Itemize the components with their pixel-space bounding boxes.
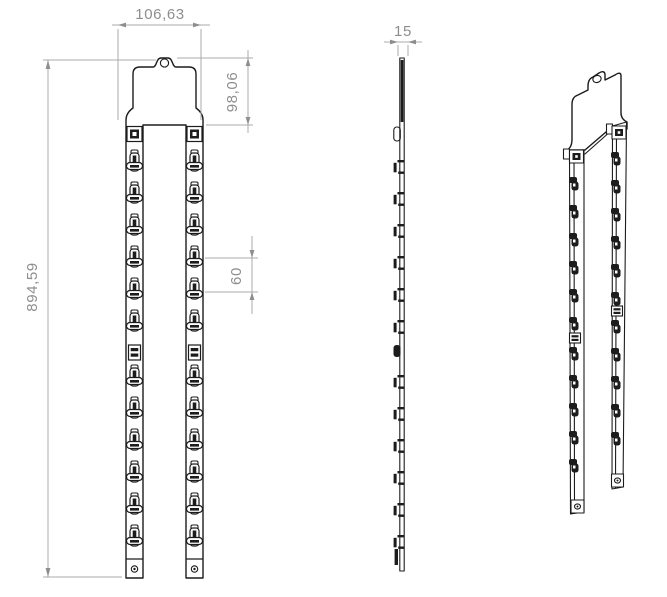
hook-pill-slot bbox=[130, 229, 139, 232]
hook-pill-slot bbox=[130, 165, 139, 168]
side-hook-tick bbox=[398, 503, 405, 505]
iso-top-square-right bbox=[612, 126, 626, 139]
iso-strip-left-fold bbox=[574, 150, 575, 513]
side-hook-bar bbox=[394, 442, 397, 452]
side-hook-bar bbox=[394, 474, 397, 484]
iso-hook-gap bbox=[573, 212, 576, 215]
iso-hook-gap bbox=[573, 438, 576, 441]
hook-pill-slot bbox=[130, 508, 139, 511]
hook-pill-slot bbox=[190, 293, 199, 296]
iso-hook-gap bbox=[615, 187, 618, 190]
side-hook-tick bbox=[398, 236, 404, 238]
hook-pill-slot bbox=[190, 165, 199, 168]
side-hook-bar bbox=[394, 291, 397, 301]
side-hook-tick bbox=[398, 547, 404, 549]
arrowhead-left-icon bbox=[118, 23, 126, 28]
dim-overall-height-label: 894,59 bbox=[24, 262, 41, 311]
side-hook-tick bbox=[398, 224, 405, 226]
iso-hook-gap bbox=[615, 355, 618, 358]
hook-pill-slot bbox=[190, 197, 199, 200]
iso-hook-gap bbox=[573, 354, 576, 357]
foot-hole-center bbox=[617, 480, 619, 482]
foot-hole-center bbox=[133, 568, 135, 570]
hook-pill-slot bbox=[130, 293, 139, 296]
arrowhead-right-icon bbox=[390, 40, 398, 45]
arrowhead-right-icon bbox=[193, 23, 201, 28]
bracket-hole bbox=[618, 131, 621, 134]
iso-mid-slot bbox=[572, 339, 579, 341]
side-hook-tick bbox=[398, 172, 404, 174]
side-hook-tick bbox=[398, 419, 404, 421]
hook-pill-slot bbox=[130, 197, 139, 200]
side-hook-tick bbox=[398, 451, 404, 453]
iso-hook-gap bbox=[615, 411, 618, 414]
arrowhead-down-icon bbox=[46, 568, 51, 577]
iso-hook-gap bbox=[615, 327, 618, 330]
side-hook-tick bbox=[398, 204, 404, 206]
side-hook-bar bbox=[394, 259, 397, 269]
side-hook-bar bbox=[394, 410, 397, 420]
side-hook-tick bbox=[398, 192, 405, 194]
dim-hook-pitch-label: 60 bbox=[228, 267, 245, 285]
side-hook-bar bbox=[394, 195, 397, 205]
arrowhead-left-icon bbox=[408, 40, 416, 45]
arrowhead-up-icon bbox=[246, 58, 251, 66]
side-hook-tick bbox=[398, 256, 405, 258]
mid-bracket-slot bbox=[191, 354, 199, 357]
side-hook-bar bbox=[394, 506, 397, 516]
mid-bracket-slot bbox=[131, 354, 139, 357]
iso-hook-gap bbox=[615, 215, 618, 218]
hook-pill-slot bbox=[130, 476, 139, 479]
iso-hook-gap bbox=[573, 410, 576, 413]
iso-hook-gap bbox=[573, 466, 576, 469]
side-hook-tick bbox=[398, 375, 405, 377]
hook-pill-slot bbox=[190, 476, 199, 479]
iso-hook-gap bbox=[573, 240, 576, 243]
technical-drawing: 106,63 98,06 894,59 60 bbox=[0, 0, 667, 597]
hook-pill-slot bbox=[130, 412, 139, 415]
top-bracket-hole bbox=[133, 132, 137, 136]
front-view: 106,63 98,06 894,59 60 bbox=[24, 6, 258, 578]
side-hook-tick bbox=[398, 439, 405, 441]
hook-pill-slot bbox=[130, 540, 139, 543]
iso-mid-slot bbox=[614, 308, 621, 310]
side-hook-tick bbox=[398, 332, 404, 334]
arrowhead-up-icon bbox=[46, 60, 51, 69]
side-hook-bar bbox=[394, 163, 397, 173]
iso-hook-gap bbox=[615, 383, 618, 386]
iso-hook-gap bbox=[615, 271, 618, 274]
bracket-hole bbox=[575, 155, 578, 158]
side-hook-tick bbox=[398, 483, 404, 485]
iso-mid-slot bbox=[614, 312, 621, 314]
side-hook-tick bbox=[398, 515, 404, 517]
iso-mid-bracket bbox=[612, 306, 623, 316]
foot-hole-center bbox=[577, 506, 579, 508]
iso-hook-gap bbox=[573, 324, 576, 327]
mid-bracket-slot bbox=[191, 348, 199, 351]
hook-pill-slot bbox=[130, 444, 139, 447]
hook-pill-slot bbox=[190, 380, 199, 383]
iso-hook-gap bbox=[573, 296, 576, 299]
isometric-view bbox=[564, 72, 628, 514]
mid-bracket-outline bbox=[129, 345, 141, 360]
side-hook-bar bbox=[394, 378, 397, 388]
iso-foot-right bbox=[612, 474, 624, 487]
mid-bracket-slot bbox=[131, 348, 139, 351]
dim-thickness-label: 15 bbox=[394, 23, 412, 40]
dim-thickness: 15 bbox=[384, 23, 422, 56]
side-hook-tick bbox=[398, 160, 405, 162]
iso-foot-left bbox=[571, 500, 584, 513]
hang-hole bbox=[160, 59, 168, 67]
side-mid-bracket bbox=[394, 345, 401, 357]
side-hook-tick bbox=[398, 471, 405, 473]
hook-pill-slot bbox=[190, 412, 199, 415]
arrowhead-down-icon bbox=[250, 250, 255, 258]
dim-header-height-label: 98,06 bbox=[224, 72, 241, 113]
side-view: 15 bbox=[384, 23, 422, 571]
side-hook-bar bbox=[394, 538, 397, 548]
hook-pill-slot bbox=[130, 261, 139, 264]
hook-pill-slot bbox=[190, 444, 199, 447]
side-hook-bar bbox=[394, 227, 397, 237]
side-hook-tick bbox=[398, 268, 404, 270]
side-hook-tick bbox=[398, 387, 404, 389]
iso-mid-slot bbox=[572, 335, 579, 337]
iso-clip-left bbox=[564, 149, 570, 159]
hook-pill-slot bbox=[190, 508, 199, 511]
iso-hook-gap bbox=[615, 439, 618, 442]
iso-hook-gap bbox=[615, 299, 618, 302]
arrowhead-up-icon bbox=[250, 292, 255, 300]
technical-drawing-canvas: 106,63 98,06 894,59 60 bbox=[0, 0, 667, 597]
dim-overall-width-label: 106,63 bbox=[135, 6, 184, 23]
side-hook-tick bbox=[398, 407, 405, 409]
side-header-edge bbox=[401, 60, 404, 122]
mid-bracket-outline bbox=[189, 345, 201, 360]
hook-pill-slot bbox=[190, 229, 199, 232]
hook-pill-slot bbox=[190, 540, 199, 543]
side-hook-tick bbox=[398, 300, 404, 302]
iso-hook-gap bbox=[573, 184, 576, 187]
top-bracket-hole bbox=[193, 132, 197, 136]
side-foot bbox=[395, 549, 398, 565]
hook-pill-slot bbox=[190, 261, 199, 264]
hook-pill-slot bbox=[190, 325, 199, 328]
foot-hole-center bbox=[193, 568, 195, 570]
iso-top-square-left bbox=[570, 150, 584, 163]
hook-pill-slot bbox=[130, 325, 139, 328]
arrowhead-down-icon bbox=[246, 117, 251, 125]
iso-hook-gap bbox=[615, 159, 618, 162]
iso-hook-gap bbox=[615, 243, 618, 246]
iso-hook-gap bbox=[573, 268, 576, 271]
dim-hook-pitch: 60 bbox=[205, 236, 258, 314]
side-hook-tick bbox=[398, 288, 405, 290]
side-hook-tick bbox=[398, 320, 405, 322]
side-hook-tick bbox=[398, 535, 405, 537]
iso-mid-bracket bbox=[570, 333, 581, 343]
hook-pill-slot bbox=[130, 380, 139, 383]
iso-hook-gap bbox=[573, 382, 576, 385]
side-hook-bar bbox=[394, 323, 397, 333]
